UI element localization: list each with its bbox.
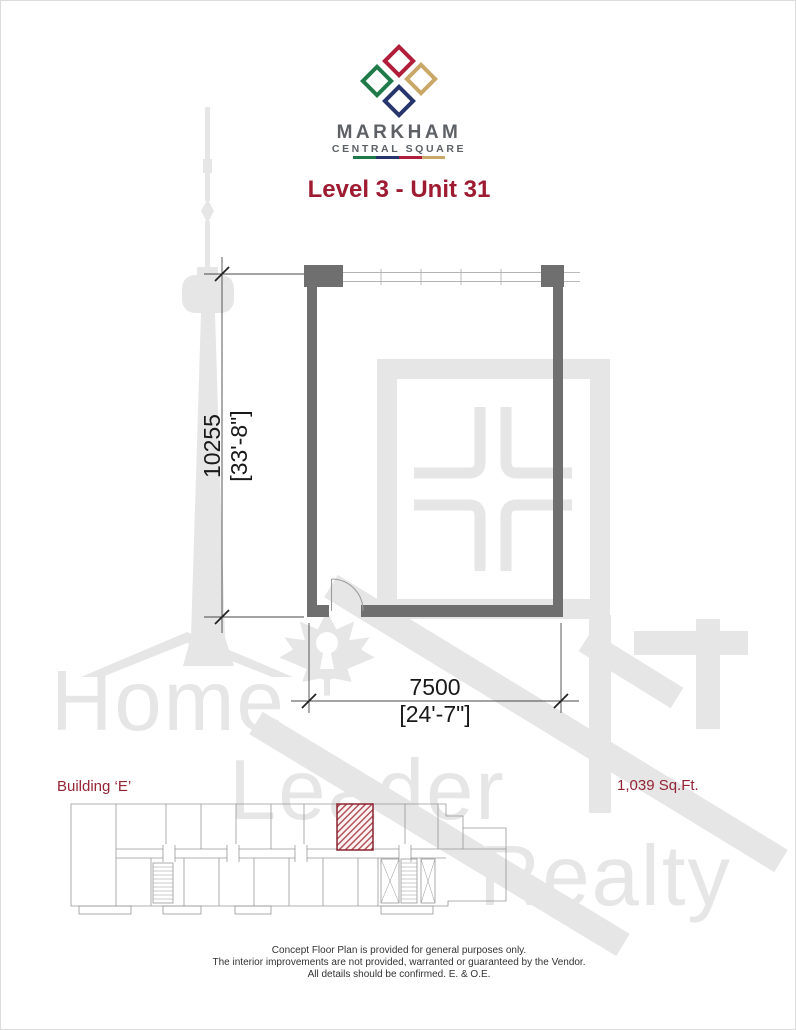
horizontal-dim-metric: 7500 (409, 674, 460, 700)
horizontal-dim-imperial: [24'-7"] (399, 701, 470, 727)
area-label: 1,039 Sq.Ft. (617, 777, 699, 794)
brand-name: MARKHAM (289, 122, 509, 144)
color-bar-segment (376, 156, 399, 159)
page-title: Level 3 - Unit 31 (1, 176, 796, 204)
unit-floor-plan (304, 265, 580, 617)
building-key-plan (71, 804, 506, 914)
floorplan-page: Home Leader Realty (0, 0, 796, 1030)
vertical-dim-imperial: [33'-8"] (226, 410, 252, 481)
color-bar-segment (353, 156, 376, 159)
disclaimer-line-2: The interior improvements are not provid… (1, 957, 796, 969)
entry-door-swing (332, 579, 364, 611)
building-label: Building ‘E’ (57, 778, 131, 795)
brand-color-bar (353, 156, 445, 159)
brand-subtitle: CENTRAL SQUARE (289, 143, 509, 155)
disclaimer-line-3: All details should be confirmed. E. & O.… (1, 969, 796, 981)
disclaimer: Concept Floor Plan is provided for gener… (1, 945, 796, 982)
horizontal-dimension: 7500 [24'-7"] (291, 623, 579, 727)
vertical-dimension: 10255 [33'-8"] (199, 257, 304, 633)
elevator-core (381, 859, 435, 903)
corridor-door-notches (163, 844, 411, 862)
unit-location-marker (337, 804, 373, 850)
color-bar-segment (399, 156, 422, 159)
disclaimer-line-1: Concept Floor Plan is provided for gener… (1, 945, 796, 957)
color-bar-segment (422, 156, 445, 159)
stair-core (153, 863, 173, 903)
vertical-dim-metric: 10255 (199, 414, 225, 478)
unit-walls (304, 265, 564, 617)
